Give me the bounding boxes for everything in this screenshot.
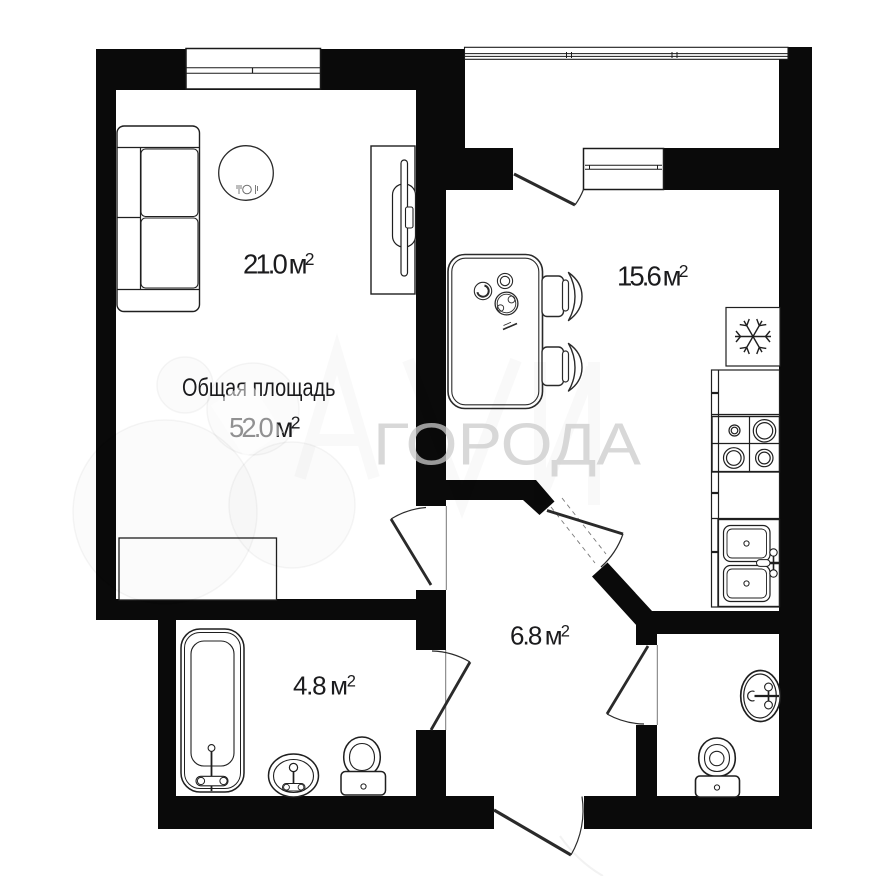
svg-text:21.0 м2: 21.0 м2 (243, 249, 314, 280)
svg-text:ГОРОДА: ГОРОДА (373, 412, 642, 478)
svg-text:15.6 м2: 15.6 м2 (617, 261, 688, 292)
svg-text:4.8 м2: 4.8 м2 (293, 671, 356, 701)
